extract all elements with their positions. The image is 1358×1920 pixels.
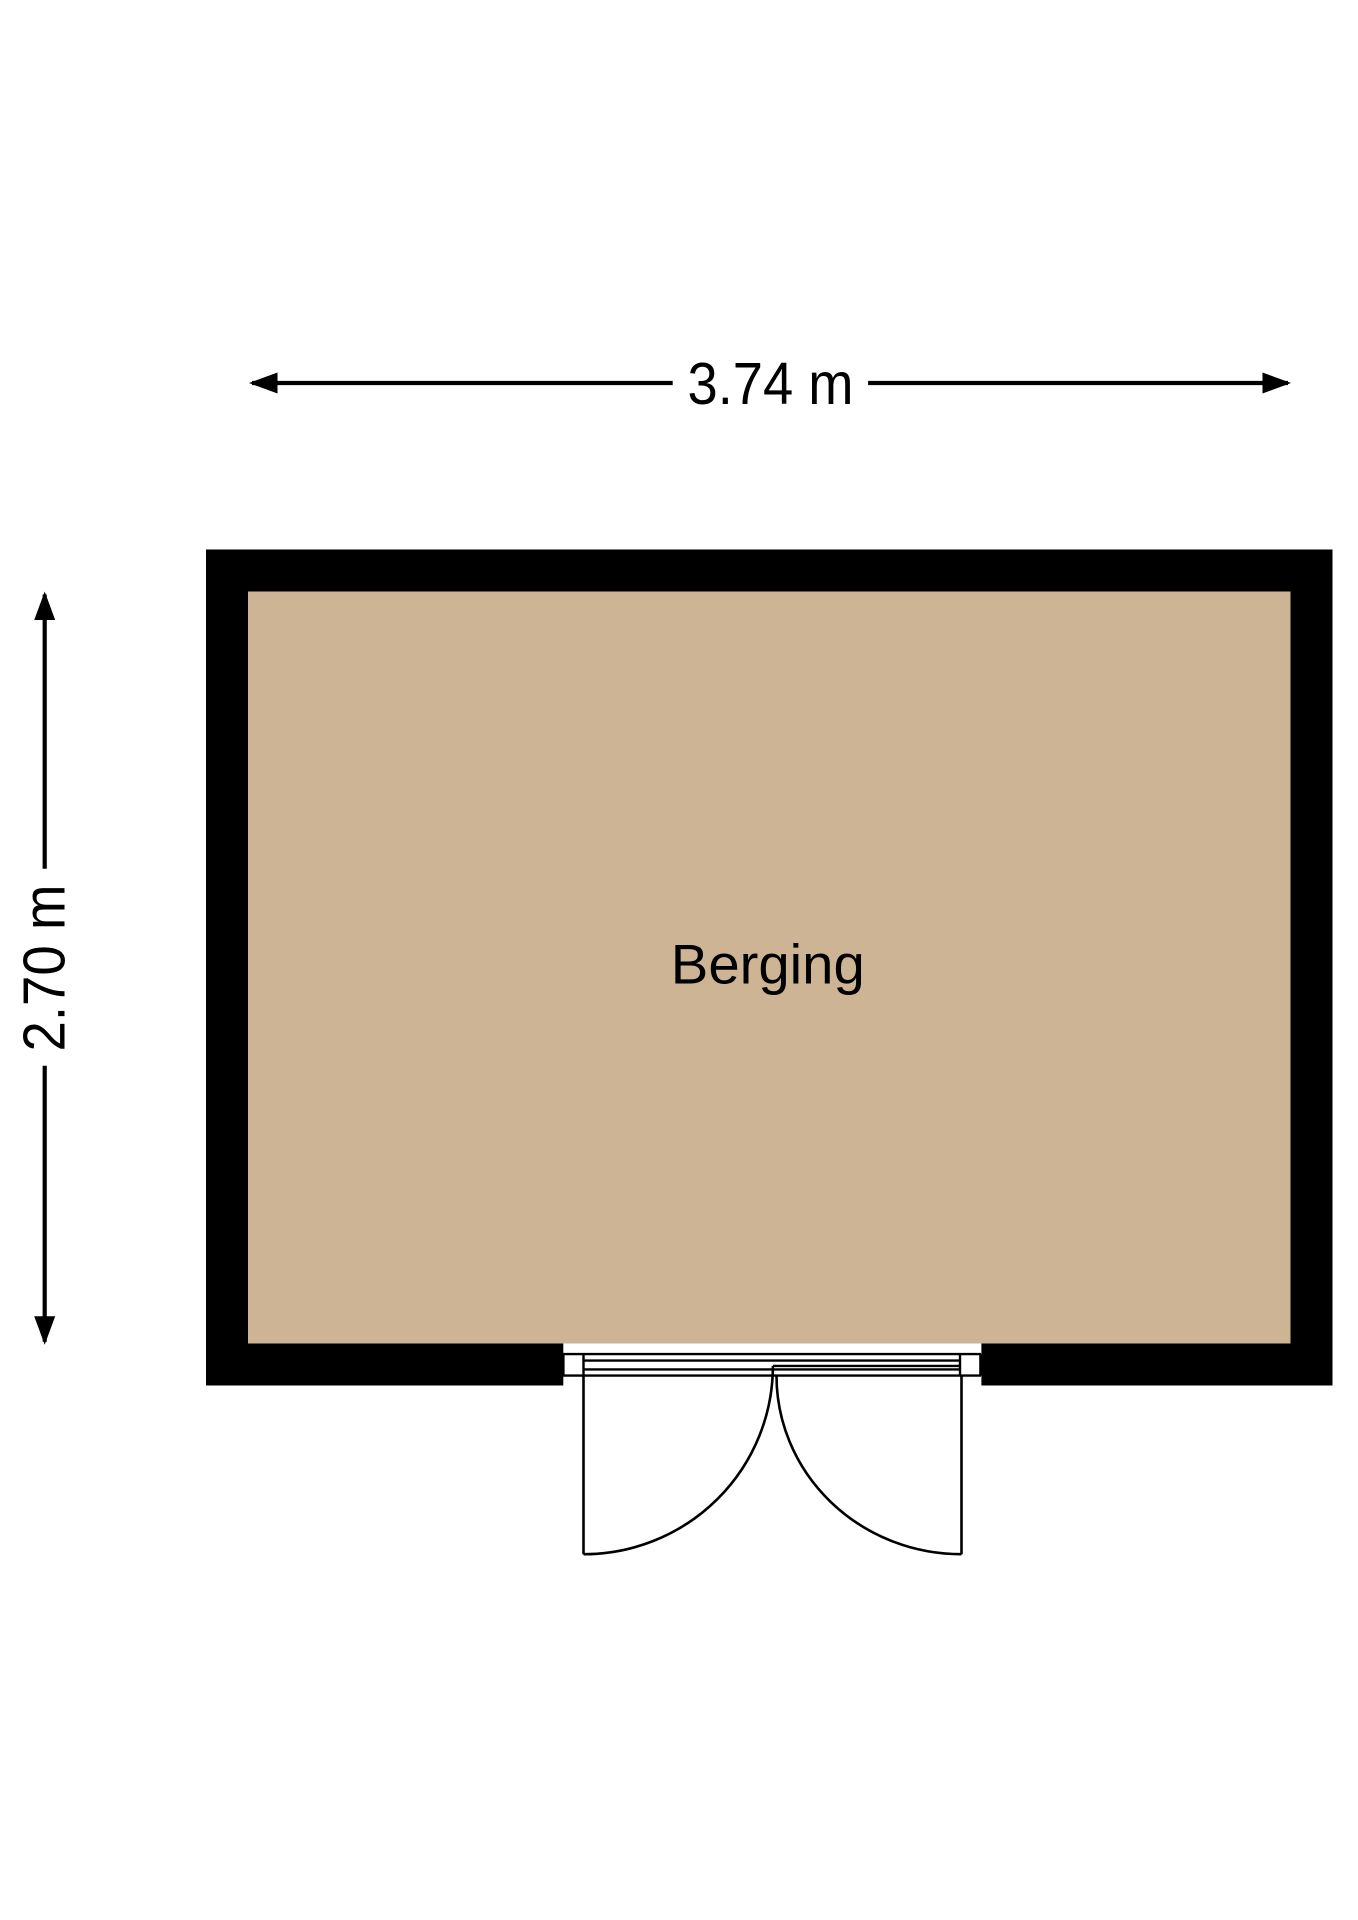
svg-text:Berging: Berging [671,933,865,996]
svg-text:3.74 m: 3.74 m [688,351,854,417]
svg-text:2.70 m: 2.70 m [12,885,78,1052]
